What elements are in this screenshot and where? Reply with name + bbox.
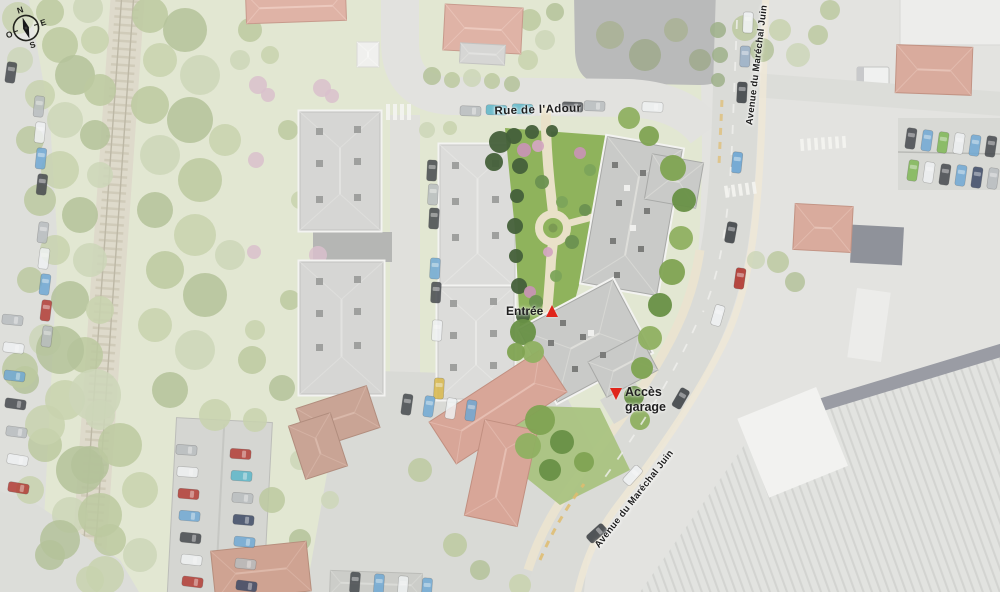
entrance-label: Entrée [506,304,543,318]
entrance-marker: Entrée [506,304,558,318]
garage-triangle-icon [610,388,622,400]
compass-e: E [39,17,48,28]
compass-o: O [4,29,14,41]
entrance-triangle-icon [546,305,558,317]
garage-access-marker: Accès garage [610,385,666,415]
garage-label: Accès garage [625,385,666,415]
compass-n: N [16,4,25,15]
map-base-layer [0,0,1000,592]
compass-rose: N E S O [0,0,56,58]
dark-industrial-roof [850,225,904,266]
compass-s: S [28,39,37,50]
site-plan-map: N E S O Rue de l'Adour Avenue du Marécha… [0,0,1000,592]
